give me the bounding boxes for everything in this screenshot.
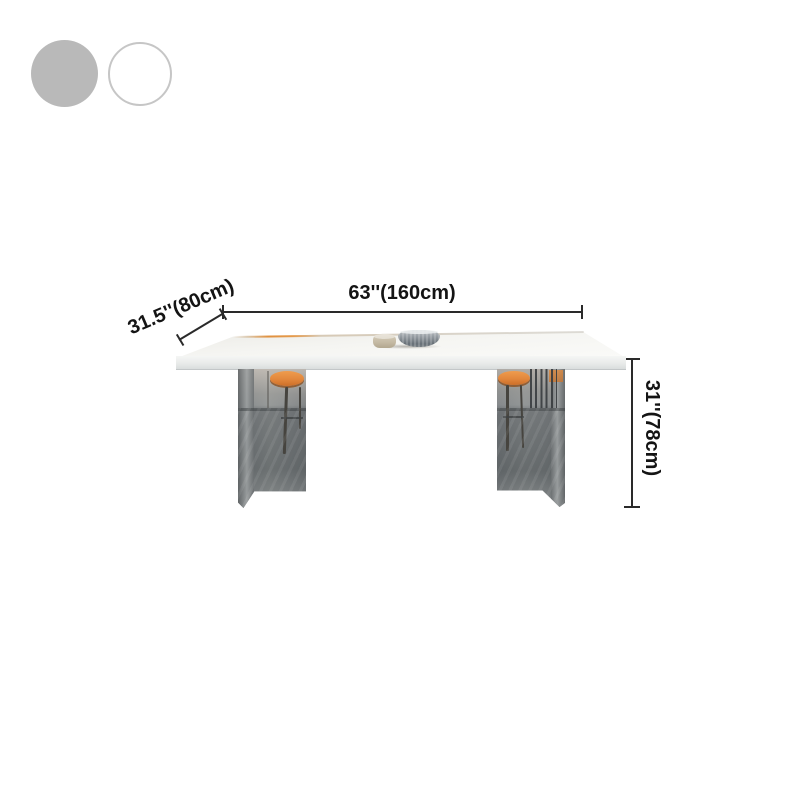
dining-table-product-image: 63''(160cm) 31.5''(80cm) 31''(78cm) xyxy=(0,0,800,800)
height-dimension-line xyxy=(631,358,633,508)
slat-screen xyxy=(530,369,557,408)
height-dimension-label: 31''(78cm) xyxy=(642,380,662,476)
stool-seat xyxy=(498,371,530,385)
stool-footrest xyxy=(503,416,524,418)
stool-leg xyxy=(283,387,288,454)
table-leg-left xyxy=(238,369,306,508)
stool-leg xyxy=(520,385,524,448)
stool-leg xyxy=(299,387,301,429)
width-dimension-line xyxy=(222,311,583,313)
product-viewer: 63''(160cm) 31.5''(80cm) 31''(78cm) xyxy=(0,0,800,800)
table-leg-right xyxy=(497,369,565,507)
stool-seat xyxy=(270,371,304,386)
stool-leg xyxy=(506,385,509,451)
tabletop-front-edge xyxy=(176,356,626,370)
stool-footrest xyxy=(281,417,303,419)
width-dimension-label: 63''(160cm) xyxy=(348,283,455,303)
cup-decor xyxy=(373,334,396,348)
background-floor-line xyxy=(238,408,306,411)
background-wall-line xyxy=(267,371,269,408)
background-floor-line xyxy=(497,408,565,411)
